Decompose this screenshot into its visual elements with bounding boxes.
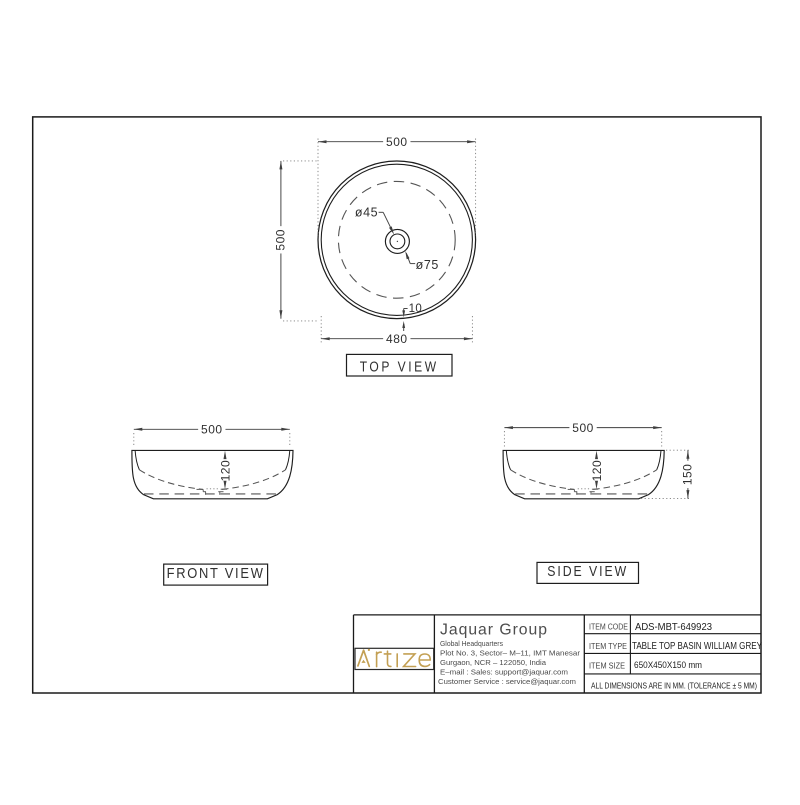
svg-text:120: 120 — [218, 460, 232, 482]
svg-text:650X450X150 mm: 650X450X150 mm — [634, 660, 702, 671]
svg-text:Gurgaon, NCR – 122050, India: Gurgaon, NCR – 122050, India — [440, 658, 547, 667]
svg-text:Jaquar Group: Jaquar Group — [440, 621, 548, 638]
svg-text:500: 500 — [201, 423, 223, 437]
svg-text:10: 10 — [409, 303, 423, 315]
svg-text:FRONT VIEW: FRONT VIEW — [167, 565, 265, 582]
svg-text:ALL DIMENSIONS ARE IN MM. (TOL: ALL DIMENSIONS ARE IN MM. (TOLERANCE ± 5… — [591, 680, 757, 690]
svg-text:120: 120 — [590, 460, 604, 482]
svg-text:TABLE TOP BASIN WILLIAM GREY: TABLE TOP BASIN WILLIAM GREY — [632, 641, 762, 652]
svg-text:ø45: ø45 — [355, 206, 378, 220]
svg-text:500: 500 — [572, 421, 594, 435]
svg-text:ITEM CODE: ITEM CODE — [589, 622, 628, 631]
svg-text:ADS-MBT-649923: ADS-MBT-649923 — [635, 622, 712, 633]
svg-text:500: 500 — [274, 229, 288, 251]
svg-text:150: 150 — [681, 464, 695, 486]
svg-text:500: 500 — [386, 135, 408, 149]
svg-text:ITEM SIZE: ITEM SIZE — [589, 662, 625, 671]
svg-text:E–mail : Sales: support@jaquar: E–mail : Sales: support@jaquar.com — [440, 667, 568, 676]
svg-text:Global Headquarters: Global Headquarters — [440, 639, 503, 648]
svg-text:Plot No. 3, Sector– M–11, IMT: Plot No. 3, Sector– M–11, IMT Manesar — [440, 649, 581, 658]
svg-text:ITEM TYPE: ITEM TYPE — [589, 642, 627, 651]
svg-text:ø75: ø75 — [416, 258, 439, 272]
svg-text:SIDE VIEW: SIDE VIEW — [547, 563, 628, 580]
svg-text:TOP VIEW: TOP VIEW — [360, 359, 439, 376]
svg-text:Customer Service : service@jaq: Customer Service : service@jaquar.com — [438, 677, 576, 686]
svg-text:480: 480 — [386, 332, 408, 346]
